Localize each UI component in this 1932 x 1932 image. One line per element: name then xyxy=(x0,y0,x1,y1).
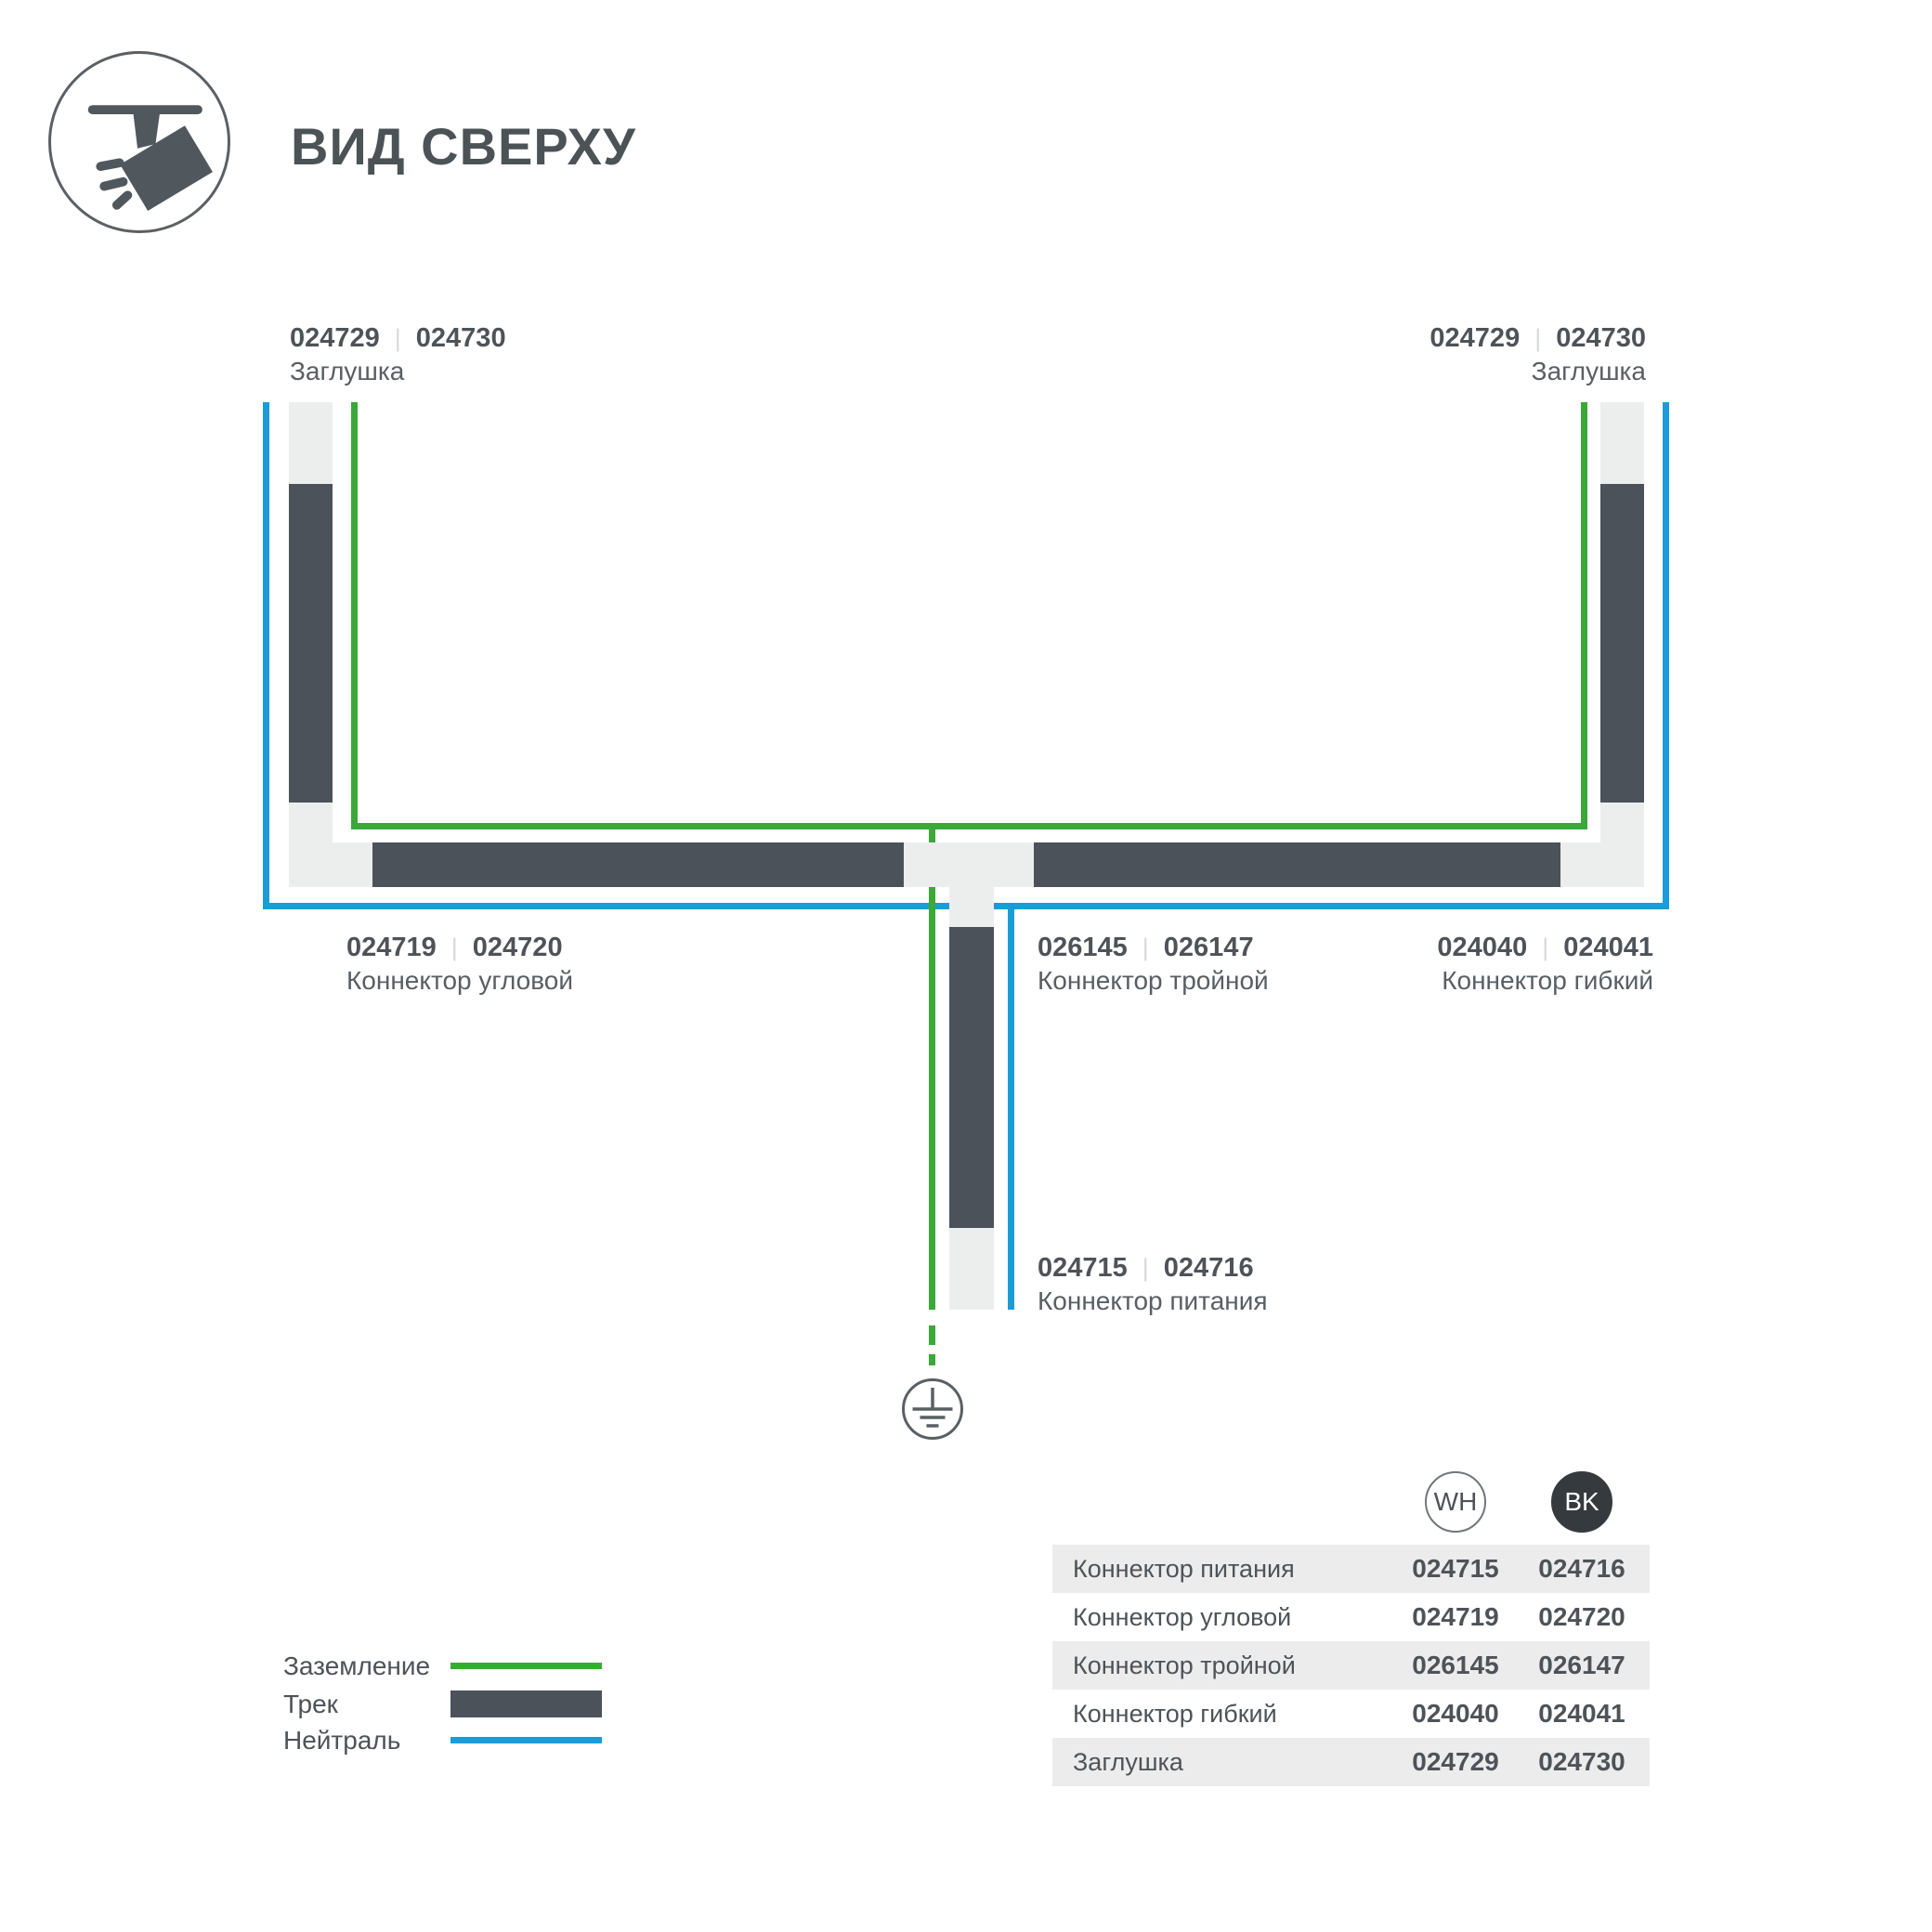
divider: | xyxy=(1142,1253,1149,1283)
corner-connector-left-hleg xyxy=(289,842,372,887)
part-number-wh: 026145 xyxy=(1038,933,1128,962)
track-left-vertical xyxy=(289,484,333,803)
part-number-bk: 024730 xyxy=(1556,323,1646,353)
part-number-bk: 024041 xyxy=(1563,933,1653,962)
page: ВИД СВЕРХУ 024729|024730 Заг xyxy=(0,0,1932,1932)
part-number-bk: 024730 xyxy=(416,323,506,353)
ground-line-dash-1 xyxy=(929,1325,935,1345)
part-number-bk: 024720 xyxy=(473,933,563,962)
top-view-icon xyxy=(48,51,230,233)
table-row: Коннектор угловой024719024720 xyxy=(1052,1593,1650,1641)
table-cell-wh: 024719 xyxy=(1392,1602,1519,1632)
label-triple-connector: 026145|026147 Коннектор тройной xyxy=(1038,933,1269,996)
table-row: Коннектор питания024715024716 xyxy=(1052,1545,1650,1593)
neutral-line-feed-branch xyxy=(1008,909,1014,1310)
column-badge-wh: WH xyxy=(1425,1471,1486,1533)
page-title: ВИД СВЕРХУ xyxy=(291,119,636,175)
legend-swatch-ground xyxy=(450,1663,602,1669)
table-row: Заглушка024729024730 xyxy=(1052,1738,1650,1786)
table-cell-wh: 024729 xyxy=(1392,1747,1519,1777)
table-cell-name: Коннектор питания xyxy=(1052,1555,1392,1584)
part-number-bk: 024716 xyxy=(1164,1253,1254,1283)
legend-label-neutral: Нейтраль xyxy=(283,1728,400,1754)
divider: | xyxy=(395,323,401,353)
track-spotlight-icon xyxy=(51,54,228,230)
table-cell-name: Коннектор гибкий xyxy=(1052,1700,1392,1729)
part-name: Заглушка xyxy=(1429,357,1646,386)
earth-symbol xyxy=(902,1378,963,1440)
column-badge-bk: BK xyxy=(1551,1471,1612,1533)
part-name: Коннектор тройной xyxy=(1038,966,1269,996)
track-stem-vertical xyxy=(949,927,994,1228)
table-cell-bk: 024720 xyxy=(1519,1602,1645,1632)
label-end-cap-left: 024729|024730 Заглушка xyxy=(290,323,506,386)
end-cap-right xyxy=(1600,402,1644,484)
part-name: Коннектор гибкий xyxy=(1437,966,1653,996)
table-cell-bk: 024716 xyxy=(1519,1554,1645,1584)
ground-line-left-vertical xyxy=(351,402,358,829)
table-cell-bk: 024041 xyxy=(1519,1699,1645,1729)
neutral-line-right-vertical xyxy=(1663,402,1669,909)
part-number-bk: 026147 xyxy=(1164,933,1254,962)
track-horizontal-left xyxy=(372,842,904,887)
label-end-cap-right: 024729|024730 Заглушка xyxy=(1429,323,1646,386)
part-name: Коннектор угловой xyxy=(346,966,573,996)
track-right-vertical xyxy=(1600,484,1644,803)
label-corner-connector: 024719|024720 Коннектор угловой xyxy=(346,933,573,996)
end-cap-left xyxy=(289,402,333,484)
legend-swatch-neutral xyxy=(450,1737,602,1743)
legend-label-ground: Заземление xyxy=(283,1653,430,1679)
ground-line-feed-branch xyxy=(929,829,935,1310)
table-cell-wh: 026145 xyxy=(1392,1651,1519,1680)
table-cell-wh: 024715 xyxy=(1392,1554,1519,1584)
neutral-line-bottom-left xyxy=(263,903,949,909)
part-number-wh: 024729 xyxy=(290,323,380,353)
part-number-wh: 024715 xyxy=(1038,1253,1128,1283)
table-cell-bk: 026147 xyxy=(1519,1651,1645,1680)
table-cell-wh: 024040 xyxy=(1392,1699,1519,1729)
t-connector-stem xyxy=(949,842,994,927)
divider: | xyxy=(1542,933,1548,962)
part-number-wh: 024719 xyxy=(346,933,437,962)
track-horizontal-right xyxy=(1034,842,1560,887)
part-number-wh: 024729 xyxy=(1429,323,1520,353)
neutral-line-bottom-right xyxy=(994,903,1669,909)
neutral-line-left-vertical xyxy=(263,402,269,909)
table-cell-name: Заглушка xyxy=(1052,1748,1392,1777)
table-rows: Коннектор питания024715024716Коннектор у… xyxy=(1052,1545,1650,1786)
table-row: Коннектор гибкий024040024041 xyxy=(1052,1690,1650,1738)
table-cell-bk: 024730 xyxy=(1519,1747,1645,1777)
part-number-wh: 024040 xyxy=(1437,933,1527,962)
earth-glyph xyxy=(905,1381,960,1437)
table-row: Коннектор тройной026145026147 xyxy=(1052,1641,1650,1690)
part-name: Заглушка xyxy=(290,357,506,386)
divider: | xyxy=(451,933,458,962)
divider: | xyxy=(1142,933,1149,962)
corner-connector-right-vleg xyxy=(1600,803,1644,887)
table-cell-name: Коннектор угловой xyxy=(1052,1603,1392,1632)
label-flexible-connector: 024040|024041 Коннектор гибкий xyxy=(1437,933,1653,996)
ground-line-dash-2 xyxy=(929,1354,935,1365)
power-connector xyxy=(949,1228,994,1310)
part-name: Коннектор питания xyxy=(1038,1286,1268,1316)
table-cell-name: Коннектор тройной xyxy=(1052,1651,1392,1680)
divider: | xyxy=(1534,323,1541,353)
legend-swatch-track xyxy=(450,1690,602,1717)
ground-line-horizontal xyxy=(351,823,1587,829)
label-power-connector: 024715|024716 Коннектор питания xyxy=(1038,1253,1268,1316)
legend-label-track: Трек xyxy=(283,1691,338,1717)
ground-line-right-vertical xyxy=(1581,402,1587,829)
